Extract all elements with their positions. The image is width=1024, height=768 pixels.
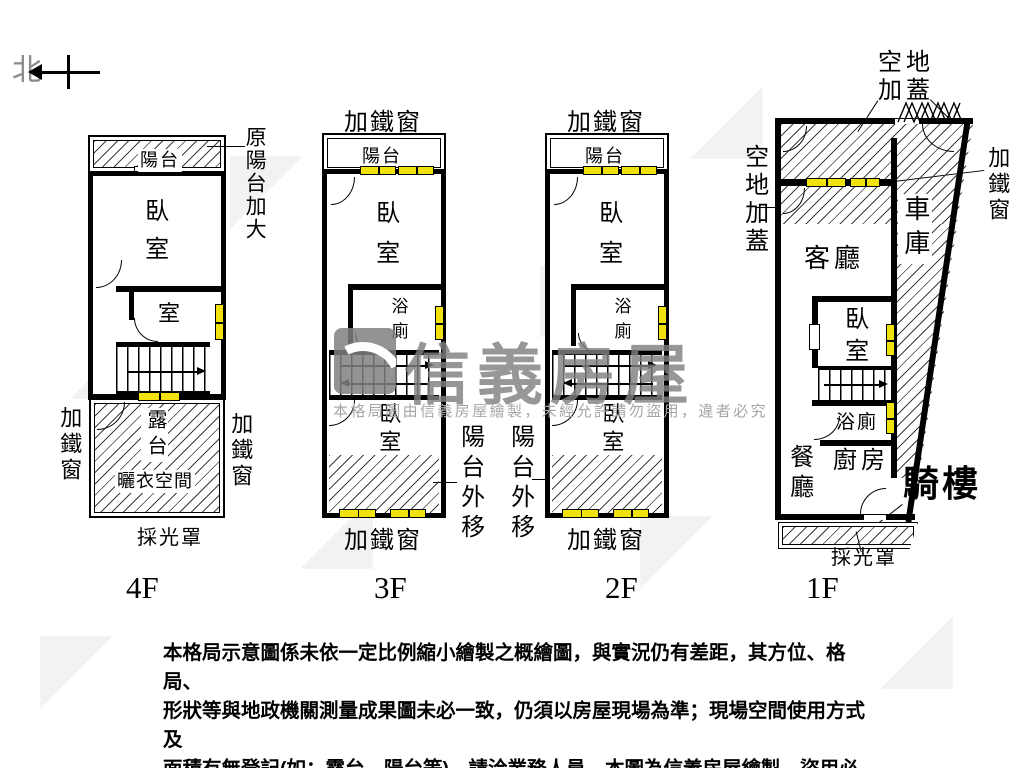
window-marker <box>850 178 880 187</box>
1f-grille-right-label: 加鐵窗 <box>985 146 1010 224</box>
1f-skylight-hatch <box>782 526 914 545</box>
window-marker <box>398 166 434 175</box>
window-marker <box>562 509 599 518</box>
window-marker <box>360 166 396 175</box>
3f-balcony-shift-label: 陽台外移 <box>455 424 483 544</box>
disclaimer-line-1: 本格局示意圖係未依一定比例縮小繪製之概繪圖，與實況仍有差距，其方位、格局、 <box>163 639 883 697</box>
4f-bedroom-label: 臥室 <box>139 198 167 274</box>
disclaimer-text: 本格局示意圖係未依一定比例縮小繪製之概繪圖，與實況仍有差距，其方位、格局、 形狀… <box>163 639 883 768</box>
1f-arcade-label: 騎樓 <box>903 464 981 505</box>
disclaimer-line-3: 面積有無登記(如：露台、陽台等)，請洽業務人員。本圖為信義房屋繪製，盜用必究。 <box>163 755 883 768</box>
4f-balcony-label: 陽台 <box>138 149 182 172</box>
3f-floor-label: 3F <box>374 570 407 606</box>
window-marker <box>339 509 376 518</box>
window-marker <box>886 324 895 356</box>
1f-covered-top-label: 空地 加蓋 <box>878 50 934 105</box>
2f-balcony-shift-label: 陽台外移 <box>505 424 533 544</box>
1f-kitchen-door-gap <box>864 515 886 520</box>
4f-skylight-label: 採光罩 <box>137 527 203 550</box>
floorplan-canvas: ◤ ◢ ◢ ◤ ◢ ◤ ◤ ◢ 北 陽台 原陽台加大 臥室 室 露台 曬衣空間 … <box>0 0 1024 768</box>
1f-skylight-label: 採光罩 <box>831 547 897 570</box>
window-marker <box>806 178 846 187</box>
watermark-notice: 本格局圖由信義房屋繪製，未經允許請勿盜用，違者必究 <box>333 400 768 421</box>
window-marker <box>215 304 224 340</box>
3f-balcony-shift-hatch <box>329 455 439 513</box>
1f-skylight-strip <box>778 522 918 549</box>
window-marker <box>613 509 649 518</box>
3f-balcony-label: 陽台 <box>362 146 402 167</box>
2f-balcony-shift-leader <box>532 479 550 480</box>
wall <box>348 284 446 290</box>
1f-bathroom-label: 浴廁 <box>836 412 878 434</box>
wall <box>129 286 134 320</box>
4f-stairs-arrow <box>128 371 198 373</box>
wall <box>775 514 915 520</box>
4f-terrace-label: 露台 <box>141 408 168 462</box>
1f-floor-label: 1F <box>806 570 839 606</box>
1f-stairs-arrow <box>824 384 880 386</box>
1f-bedroom-label: 臥室 <box>839 306 867 370</box>
4f-balcony-note-leader <box>207 146 245 147</box>
1f-awning-zigzag <box>896 98 966 124</box>
window-marker <box>621 166 657 175</box>
4f-laundry-label: 曬衣空間 <box>115 470 195 493</box>
3f-grille-bottom-label: 加鐵窗 <box>344 528 422 556</box>
1f-dining-label: 餐廳 <box>784 444 812 504</box>
4f-balcony-note: 原陽台加大 <box>243 126 267 241</box>
window-marker <box>138 392 180 401</box>
window-marker <box>390 509 426 518</box>
wall <box>812 296 896 302</box>
4f-room-label: 室 <box>158 301 180 326</box>
north-arrow-shaft <box>40 71 100 74</box>
2f-balcony-shift-hatch <box>552 455 662 513</box>
2f-bedroom-front-label: 臥室 <box>593 200 621 280</box>
2f-grille-bottom-label: 加鐵窗 <box>567 528 645 556</box>
4f-grille-left-label: 加鐵窗 <box>57 406 82 484</box>
window-marker <box>583 166 619 175</box>
1f-garage-label: 車庫 <box>898 194 932 264</box>
wall <box>571 284 669 290</box>
wall <box>820 440 896 446</box>
1f-bedroom-window <box>809 324 820 350</box>
north-arrow-cross <box>67 55 70 89</box>
wall <box>812 400 896 406</box>
1f-kitchen-label: 廚房 <box>833 448 889 476</box>
window-marker <box>886 402 895 434</box>
4f-floor-label: 4F <box>126 570 159 606</box>
1f-living-label: 客廳 <box>804 244 864 274</box>
sinyi-logo-icon <box>334 328 396 394</box>
3f-bedroom-front-label: 臥室 <box>370 200 398 280</box>
4f-stairs <box>116 342 210 396</box>
4f-grille-right-label: 加鐵窗 <box>228 412 253 490</box>
north-arrow-head <box>28 64 42 80</box>
2f-floor-label: 2F <box>605 570 638 606</box>
1f-covered-top-line1: 空地 <box>878 50 934 78</box>
disclaimer-line-2: 形狀等與地政機關測量成果圖未必一致，仍須以房屋現場為準；現場空間使用方式及 <box>163 697 883 755</box>
2f-balcony-label: 陽台 <box>585 146 625 167</box>
1f-covered-left-label: 空地加蓋 <box>739 144 767 256</box>
